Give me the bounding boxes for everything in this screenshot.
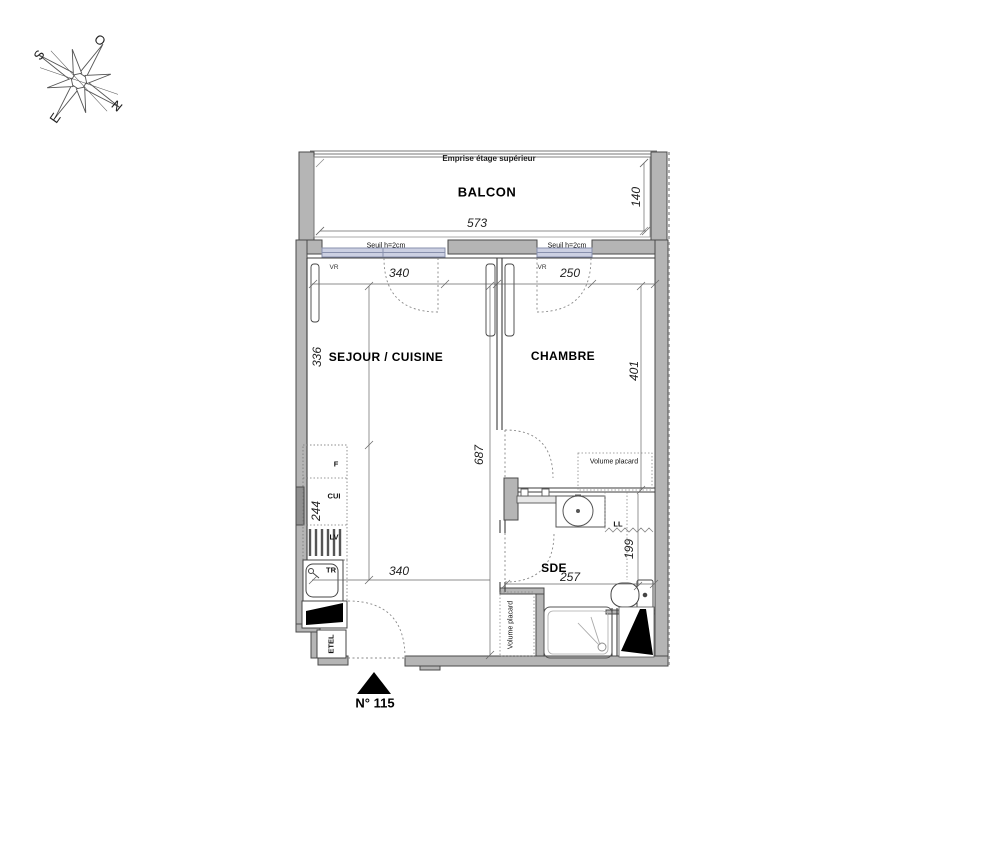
dim-bedroom-height: 401 bbox=[628, 361, 640, 381]
washer-zone-hatch bbox=[605, 528, 653, 532]
appliance-label-fridge: F bbox=[334, 460, 339, 468]
shutter-label-left: VR bbox=[329, 265, 338, 272]
dim-kitchen-run: 244 bbox=[310, 501, 322, 521]
wall-balcony-right bbox=[651, 152, 667, 240]
wall-bottom-main bbox=[405, 656, 668, 666]
room-label-balcony: BALCON bbox=[458, 186, 517, 199]
room-label-living: SEJOUR / CUISINE bbox=[329, 351, 443, 363]
radiator-icon bbox=[486, 264, 495, 336]
threshold-label-right: Seuil h=2cm bbox=[548, 243, 587, 250]
duct-label-etel: ETEL bbox=[327, 634, 335, 653]
wall-sde-south bbox=[500, 588, 544, 594]
dim-living-top-height: 336 bbox=[311, 347, 323, 367]
floor-plan-drawing bbox=[0, 0, 1000, 857]
hall-cabinet bbox=[302, 601, 347, 628]
towel-radiator-icon bbox=[517, 489, 557, 503]
vanity-sink-icon bbox=[556, 495, 605, 527]
dim-apartment-depth: 687 bbox=[473, 445, 485, 465]
appliance-label-kitchen: CUI bbox=[328, 492, 341, 500]
closet-label-bedroom: Volume placard bbox=[590, 459, 638, 466]
radiator-icon bbox=[505, 264, 514, 336]
appliance-label-sink: TR bbox=[326, 566, 336, 574]
wall-balcony-left bbox=[299, 152, 314, 240]
dim-balcony-depth: 140 bbox=[630, 187, 642, 207]
room-label-bedroom: CHAMBRE bbox=[531, 350, 595, 362]
dim-bedroom-window: 250 bbox=[560, 267, 580, 279]
compass-rose-icon bbox=[15, 18, 143, 144]
duct-sde bbox=[504, 478, 518, 520]
upper-floor-label: Emprise étage supérieur bbox=[442, 155, 535, 163]
wall-placard-shower bbox=[536, 592, 544, 656]
appliance-label-dishwasher: LV bbox=[329, 533, 338, 541]
wall-bottom-notch bbox=[420, 666, 440, 670]
kitchen-sink-icon bbox=[303, 560, 343, 601]
threshold-label-left: Seuil h=2cm bbox=[367, 243, 406, 250]
kitchen-block bbox=[303, 445, 347, 601]
closet-outlines bbox=[303, 445, 652, 656]
dim-bathroom-width: 257 bbox=[560, 571, 580, 583]
unit-number: N° 115 bbox=[355, 697, 394, 710]
floor-plan-page: O S N E Emprise étage supérieur BALCON 5… bbox=[0, 0, 1000, 857]
sde-door bbox=[619, 607, 654, 657]
appliance-label-washer: LL bbox=[613, 520, 622, 528]
dim-living-window: 340 bbox=[389, 267, 409, 279]
shutter-label-right: VR bbox=[537, 265, 546, 272]
toilet-icon bbox=[611, 580, 653, 610]
dim-bathroom-height: 199 bbox=[623, 539, 635, 559]
radiator-icon bbox=[311, 264, 319, 322]
door-arc-bedroom bbox=[505, 430, 553, 478]
shower-icon bbox=[544, 607, 612, 658]
door-swings bbox=[348, 258, 591, 658]
dim-living-width: 340 bbox=[389, 565, 409, 577]
wall-sill-mid bbox=[448, 240, 537, 254]
dimension-lines bbox=[309, 159, 659, 659]
closet-hall-outline bbox=[500, 592, 534, 656]
door-arc-entry bbox=[348, 601, 405, 658]
entrance-marker-triangle bbox=[357, 672, 391, 694]
closet-label-hall: Volume placard bbox=[508, 601, 515, 649]
dim-balcony-width: 573 bbox=[467, 217, 487, 229]
wall-right bbox=[655, 240, 668, 666]
radiator-icons bbox=[311, 264, 514, 336]
